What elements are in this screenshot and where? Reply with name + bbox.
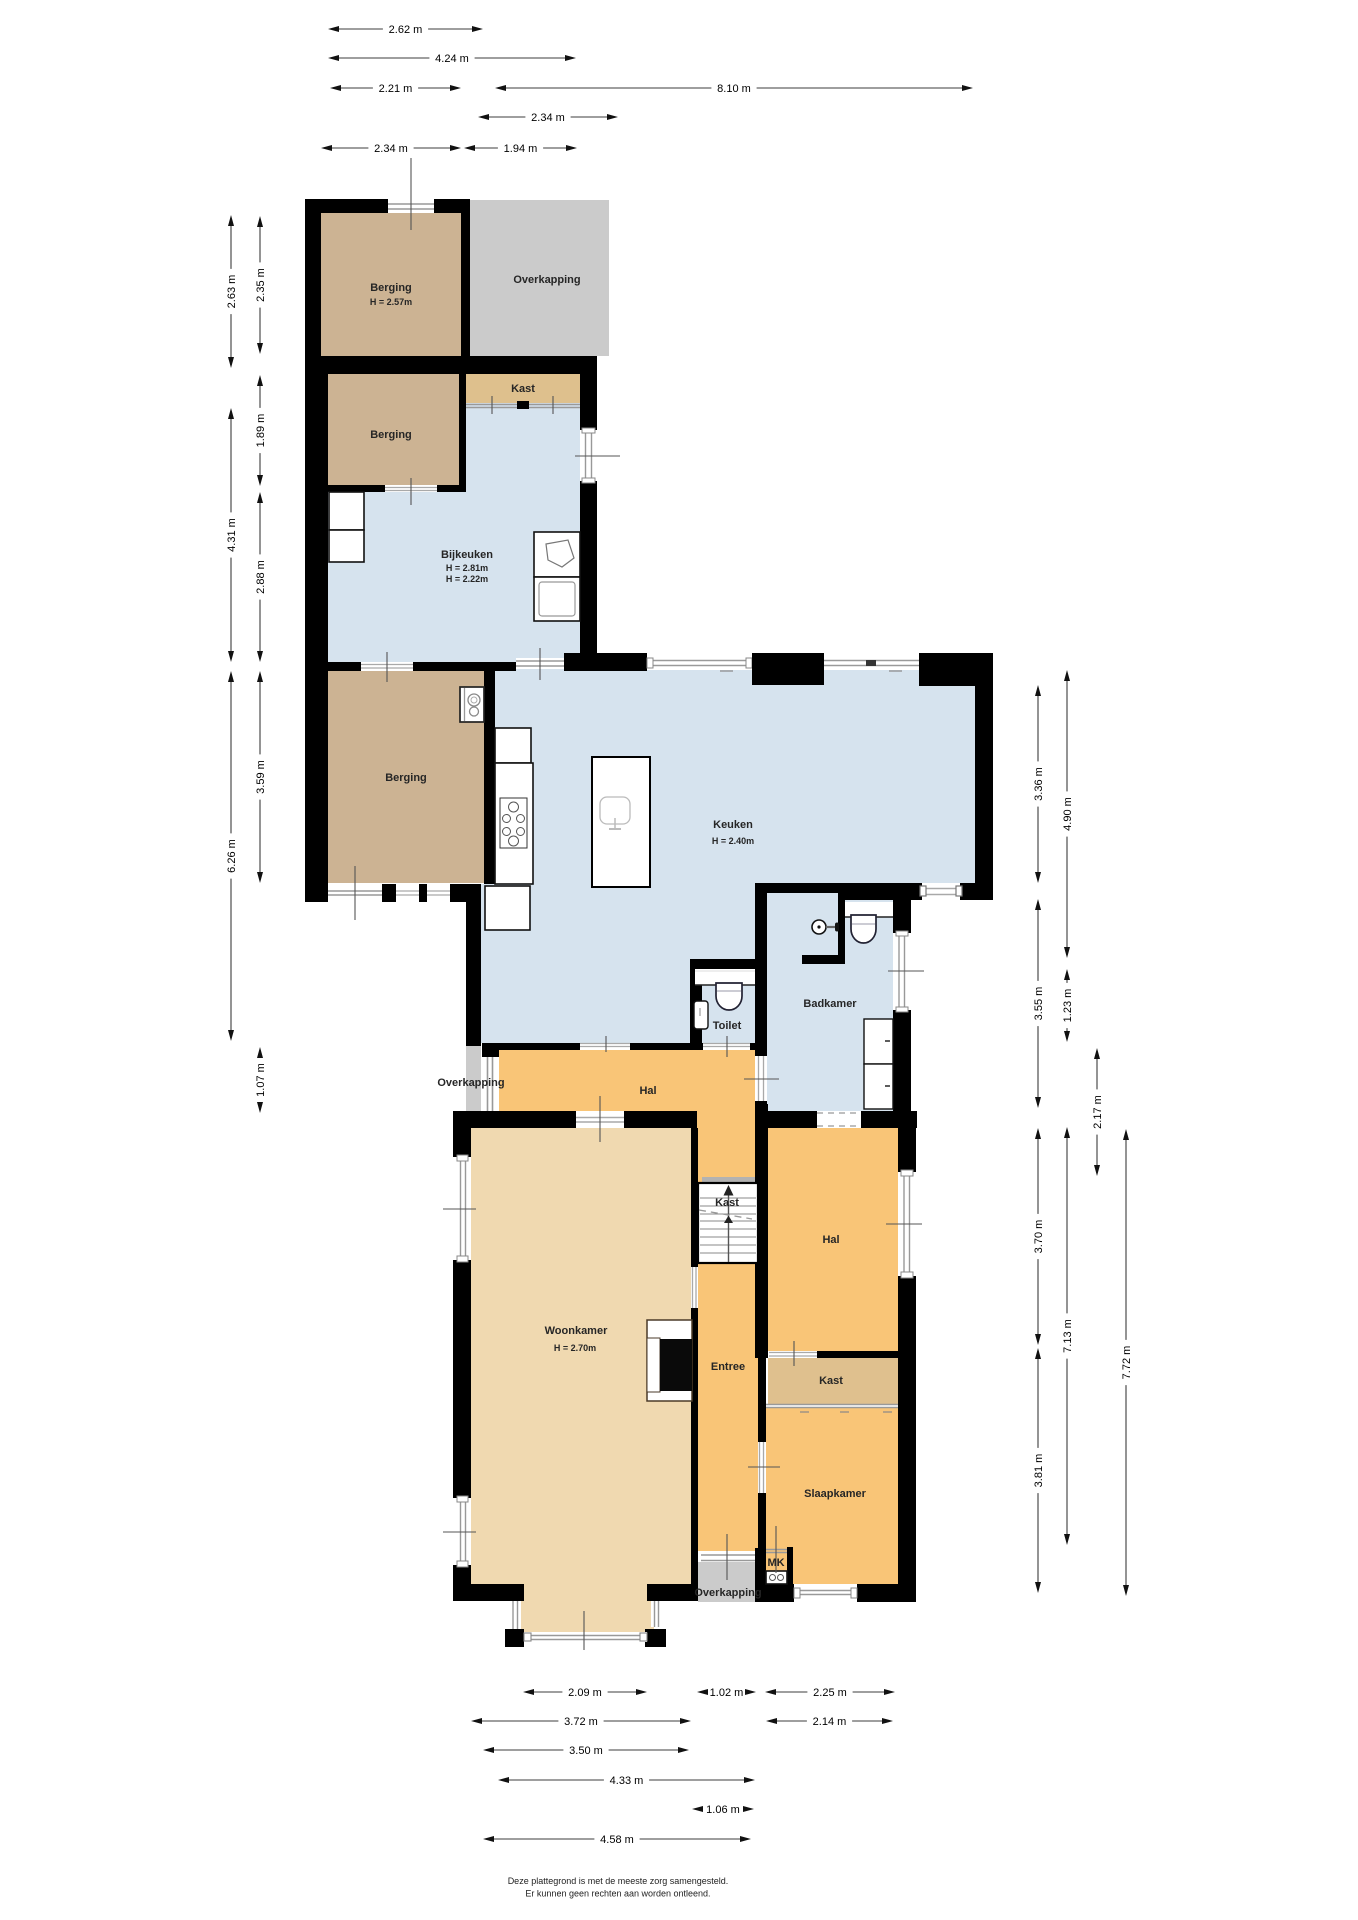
svg-text:Kast: Kast: [511, 383, 535, 395]
svg-text:MK: MK: [767, 1557, 784, 1569]
svg-text:6.26 m: 6.26 m: [226, 839, 238, 873]
svg-text:1.23 m: 1.23 m: [1062, 989, 1074, 1023]
svg-text:7.72 m: 7.72 m: [1121, 1346, 1133, 1380]
svg-text:Bijkeuken: Bijkeuken: [441, 549, 493, 561]
svg-text:2.62 m: 2.62 m: [389, 24, 423, 36]
svg-text:Overkapping: Overkapping: [437, 1077, 504, 1089]
svg-text:2.88 m: 2.88 m: [255, 560, 267, 594]
svg-text:H = 2.57m: H = 2.57m: [370, 297, 412, 307]
svg-text:Berging: Berging: [370, 429, 412, 441]
svg-text:2.14 m: 2.14 m: [813, 1716, 847, 1728]
svg-text:Kast: Kast: [819, 1375, 843, 1387]
svg-text:H = 2.81m: H = 2.81m: [446, 563, 488, 573]
svg-text:H = 2.22m: H = 2.22m: [446, 574, 488, 584]
svg-text:Kast: Kast: [715, 1197, 739, 1209]
svg-text:Berging: Berging: [385, 772, 427, 784]
svg-text:4.33 m: 4.33 m: [610, 1775, 644, 1787]
svg-text:Hal: Hal: [822, 1234, 839, 1246]
svg-text:Overkapping: Overkapping: [513, 274, 580, 286]
svg-text:Badkamer: Badkamer: [803, 998, 857, 1010]
svg-text:3.81 m: 3.81 m: [1033, 1454, 1045, 1488]
svg-text:1.06 m: 1.06 m: [706, 1804, 740, 1816]
svg-text:Woonkamer: Woonkamer: [545, 1325, 608, 1337]
svg-text:Entree: Entree: [711, 1361, 745, 1373]
svg-text:H = 2.40m: H = 2.40m: [712, 836, 754, 846]
svg-text:2.63 m: 2.63 m: [226, 275, 238, 309]
svg-text:H = 2.70m: H = 2.70m: [554, 1343, 596, 1353]
svg-text:Toilet: Toilet: [713, 1020, 742, 1032]
svg-text:2.09 m: 2.09 m: [568, 1687, 602, 1699]
svg-text:Berging: Berging: [370, 282, 412, 294]
svg-text:4.31 m: 4.31 m: [226, 518, 238, 552]
svg-text:Keuken: Keuken: [713, 819, 753, 831]
svg-text:1.07 m: 1.07 m: [255, 1063, 267, 1097]
svg-text:Slaapkamer: Slaapkamer: [804, 1488, 866, 1500]
svg-text:2.34 m: 2.34 m: [374, 143, 408, 155]
svg-text:1.94 m: 1.94 m: [504, 143, 538, 155]
svg-text:3.55 m: 3.55 m: [1033, 987, 1045, 1021]
svg-text:Overkapping: Overkapping: [694, 1587, 761, 1599]
svg-text:4.58 m: 4.58 m: [600, 1834, 634, 1846]
svg-text:Hal: Hal: [639, 1085, 656, 1097]
svg-text:4.24 m: 4.24 m: [435, 53, 469, 65]
svg-text:1.02 m: 1.02 m: [710, 1687, 744, 1699]
svg-text:2.17 m: 2.17 m: [1092, 1095, 1104, 1129]
svg-text:2.35 m: 2.35 m: [255, 268, 267, 302]
svg-text:2.21 m: 2.21 m: [379, 83, 413, 95]
svg-text:2.34 m: 2.34 m: [531, 112, 565, 124]
svg-text:3.50 m: 3.50 m: [569, 1745, 603, 1757]
svg-text:3.59 m: 3.59 m: [255, 760, 267, 794]
svg-text:Deze plattegrond is met de mee: Deze plattegrond is met de meeste zorg s…: [508, 1876, 729, 1886]
svg-text:7.13 m: 7.13 m: [1062, 1319, 1074, 1353]
svg-text:8.10 m: 8.10 m: [717, 83, 751, 95]
svg-text:3.36 m: 3.36 m: [1033, 767, 1045, 801]
svg-text:Er kunnen geen rechten aan wor: Er kunnen geen rechten aan worden ontlee…: [525, 1889, 710, 1899]
svg-text:3.72 m: 3.72 m: [564, 1716, 598, 1728]
svg-text:1.89 m: 1.89 m: [255, 414, 267, 448]
svg-text:4.90 m: 4.90 m: [1062, 797, 1074, 831]
svg-text:2.25 m: 2.25 m: [813, 1687, 847, 1699]
svg-text:3.70 m: 3.70 m: [1033, 1220, 1045, 1254]
